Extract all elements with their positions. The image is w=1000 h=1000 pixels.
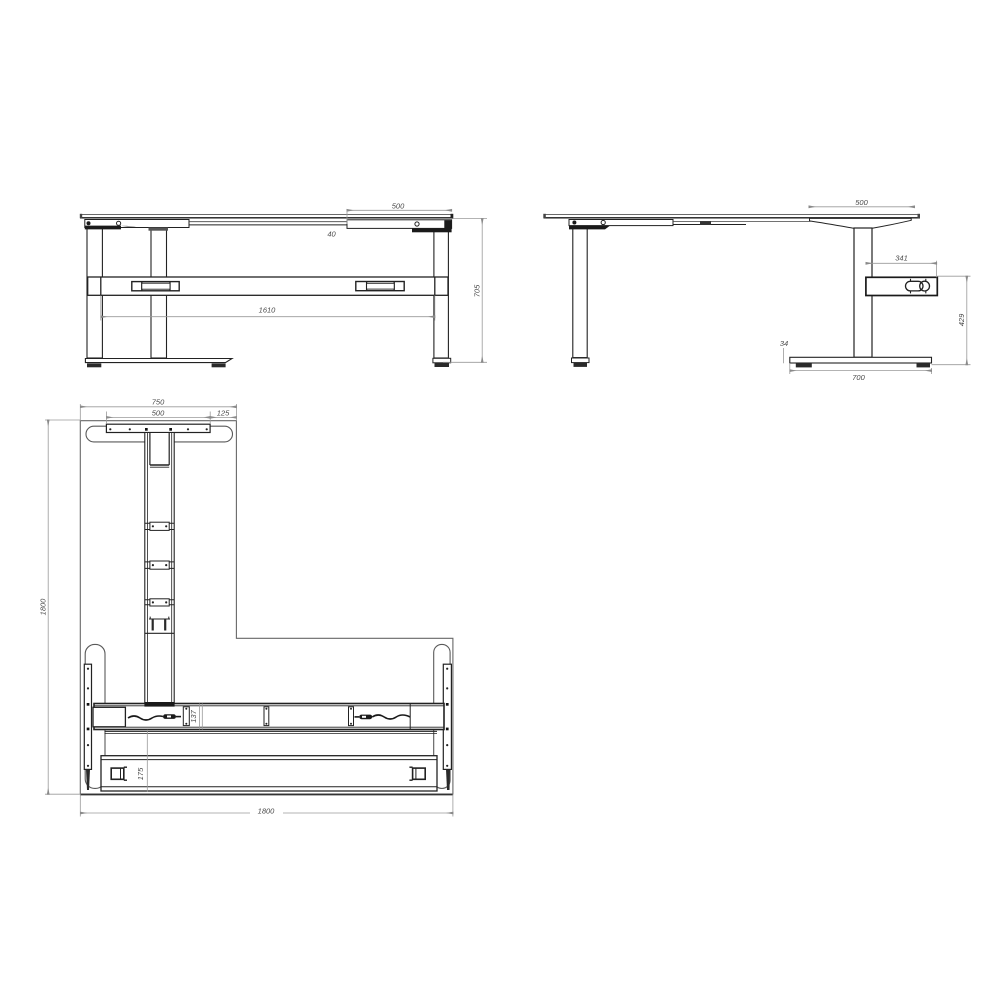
svg-text:40: 40 [327, 230, 336, 239]
svg-text:705: 705 [473, 284, 482, 297]
svg-text:341: 341 [895, 254, 908, 263]
svg-text:125: 125 [217, 408, 230, 417]
svg-text:175: 175 [136, 767, 145, 780]
svg-text:700: 700 [852, 373, 865, 382]
svg-text:34: 34 [780, 339, 788, 348]
svg-text:1800: 1800 [258, 807, 276, 816]
svg-text:429: 429 [957, 313, 966, 326]
svg-text:137: 137 [189, 709, 198, 722]
svg-text:1800: 1800 [39, 598, 48, 616]
svg-text:500: 500 [392, 202, 405, 211]
svg-text:500: 500 [855, 198, 868, 207]
svg-text:750: 750 [152, 398, 165, 407]
svg-text:1610: 1610 [259, 306, 277, 315]
svg-text:500: 500 [152, 408, 165, 417]
